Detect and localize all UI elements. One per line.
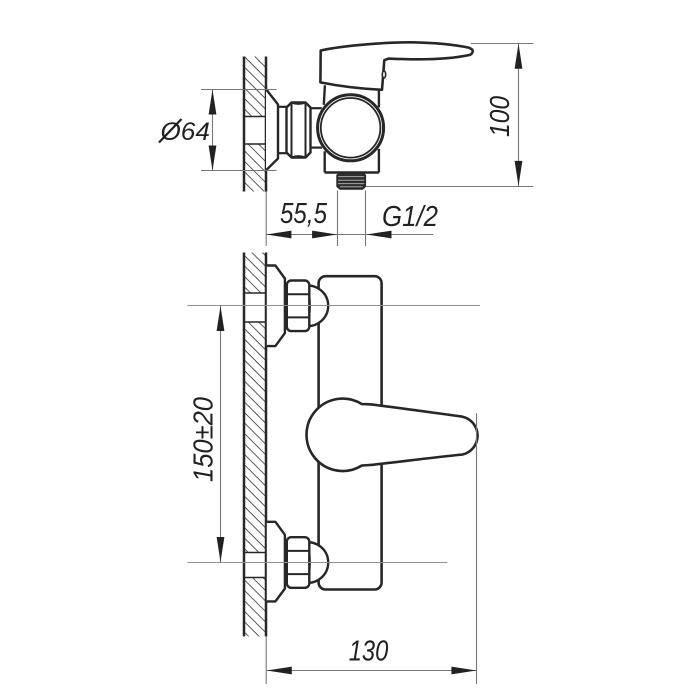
svg-text:55,5: 55,5 — [280, 198, 328, 230]
svg-text:100: 100 — [484, 96, 515, 137]
svg-text:150±20: 150±20 — [188, 396, 219, 482]
svg-text:G1/2: G1/2 — [382, 200, 438, 232]
svg-text:130: 130 — [349, 636, 389, 668]
